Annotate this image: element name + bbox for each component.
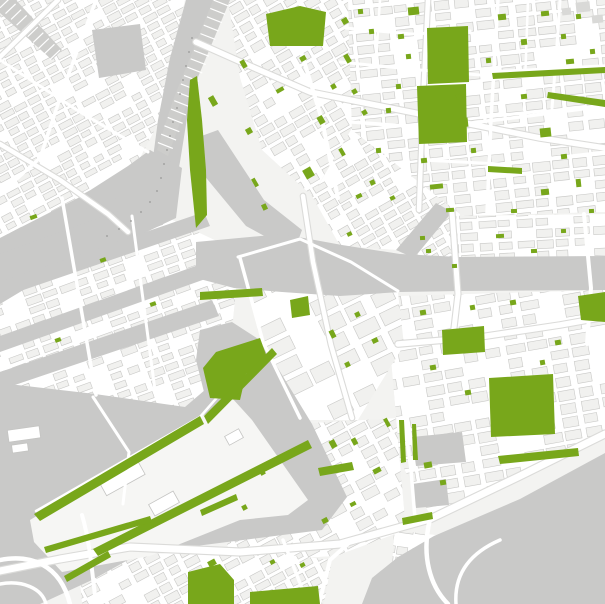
building-block bbox=[496, 202, 513, 213]
small-park bbox=[471, 148, 476, 153]
building-block bbox=[525, 88, 544, 99]
building-block bbox=[536, 218, 548, 225]
small-park bbox=[430, 365, 437, 371]
building-block bbox=[461, 233, 478, 241]
building-block bbox=[499, 242, 512, 250]
building-block bbox=[601, 44, 605, 54]
small-park bbox=[561, 154, 567, 160]
small-park bbox=[498, 14, 507, 21]
building-block bbox=[475, 8, 491, 18]
building-block bbox=[576, 193, 594, 202]
building-block bbox=[594, 248, 605, 256]
ferry-dot bbox=[188, 51, 190, 53]
building-block bbox=[501, 54, 520, 65]
building-block bbox=[449, 146, 466, 157]
building-block bbox=[479, 221, 496, 229]
building-block bbox=[461, 462, 475, 474]
building-block bbox=[515, 188, 530, 197]
building-block bbox=[471, 155, 489, 166]
building-block bbox=[518, 241, 535, 248]
small-park bbox=[358, 9, 363, 14]
building-block bbox=[511, 152, 523, 161]
building-block bbox=[498, 30, 514, 39]
building-block bbox=[585, 82, 602, 93]
building-block bbox=[466, 107, 480, 117]
gray-building bbox=[576, 1, 591, 12]
building-block bbox=[495, 190, 510, 200]
small-park bbox=[456, 94, 462, 100]
small-park bbox=[426, 249, 431, 253]
building-block bbox=[401, 77, 415, 87]
small-park bbox=[541, 189, 550, 196]
ferry-dot bbox=[179, 93, 181, 95]
small-park bbox=[398, 34, 404, 40]
small-park bbox=[521, 39, 528, 46]
building-block bbox=[565, 84, 583, 95]
ferry-dot bbox=[182, 79, 184, 81]
small-park bbox=[420, 236, 425, 240]
building-block bbox=[574, 169, 590, 178]
building-block bbox=[429, 148, 443, 158]
small-park bbox=[440, 480, 447, 486]
small-park bbox=[376, 148, 381, 153]
city-map-svg bbox=[0, 0, 605, 604]
building-block bbox=[516, 4, 532, 13]
building-block bbox=[461, 244, 473, 252]
ferry-dot bbox=[185, 65, 187, 67]
building-block bbox=[491, 154, 505, 163]
building-block bbox=[503, 78, 522, 88]
small-park bbox=[510, 300, 517, 306]
building-block bbox=[558, 24, 575, 35]
building-block bbox=[521, 53, 534, 62]
building-block bbox=[477, 20, 495, 30]
ferry-dot bbox=[176, 107, 178, 109]
building-block bbox=[510, 140, 523, 149]
water-dock-basin bbox=[92, 24, 146, 78]
ferry-dot bbox=[118, 228, 120, 230]
small-park bbox=[496, 234, 504, 238]
building-block bbox=[388, 140, 405, 149]
building-block bbox=[537, 240, 554, 249]
outline-structure bbox=[12, 443, 29, 453]
small-park bbox=[511, 209, 517, 213]
ferry-dot bbox=[163, 163, 165, 165]
small-park bbox=[561, 34, 566, 39]
building-block bbox=[464, 95, 480, 106]
small-park bbox=[420, 310, 427, 316]
small-park bbox=[406, 54, 411, 59]
small-park bbox=[541, 11, 549, 17]
small-park bbox=[486, 58, 491, 63]
building-block bbox=[472, 168, 486, 177]
building-block bbox=[378, 43, 390, 52]
building-block bbox=[593, 226, 605, 235]
building-block bbox=[468, 132, 482, 141]
small-park bbox=[470, 305, 476, 311]
ferry-dot bbox=[166, 149, 168, 151]
building-block bbox=[498, 220, 509, 227]
building-block bbox=[557, 250, 569, 257]
small-park bbox=[421, 158, 427, 164]
small-park bbox=[452, 264, 457, 268]
ferry-dot bbox=[191, 37, 193, 39]
small-park bbox=[540, 127, 552, 137]
building-block bbox=[454, 194, 470, 204]
gray-building bbox=[562, 8, 572, 16]
building-block bbox=[600, 32, 605, 41]
building-block bbox=[379, 55, 394, 65]
building-block bbox=[569, 121, 584, 131]
building-block bbox=[374, 6, 393, 15]
building-block bbox=[596, 0, 605, 6]
building-block bbox=[592, 155, 605, 165]
ferry-dot bbox=[130, 220, 132, 222]
building-block bbox=[434, 0, 449, 10]
building-block bbox=[460, 222, 472, 230]
building-block bbox=[435, 12, 451, 21]
building-block bbox=[594, 167, 605, 176]
building-block bbox=[552, 159, 569, 169]
small-park bbox=[576, 14, 581, 19]
building-block bbox=[499, 304, 513, 314]
building-block bbox=[534, 173, 551, 184]
ferry-dot bbox=[172, 121, 174, 123]
small-park bbox=[576, 179, 582, 187]
building-block bbox=[532, 161, 551, 172]
park-top-center bbox=[266, 6, 326, 46]
ferry-dot bbox=[156, 190, 158, 192]
building-block bbox=[499, 42, 515, 51]
building-block bbox=[452, 170, 465, 179]
building-block bbox=[366, 130, 384, 141]
building-block bbox=[440, 465, 456, 477]
building-block bbox=[478, 308, 492, 319]
building-block bbox=[536, 2, 552, 12]
building-block bbox=[579, 386, 594, 398]
water-gray-yard-1 bbox=[412, 432, 466, 466]
park-big-se bbox=[489, 374, 555, 437]
small-park bbox=[459, 118, 469, 128]
building-block bbox=[554, 171, 570, 181]
ferry-dot bbox=[140, 211, 142, 213]
building-block bbox=[595, 180, 605, 189]
small-park bbox=[396, 84, 401, 89]
ferry-dot bbox=[149, 201, 151, 203]
building-block bbox=[480, 243, 492, 251]
building-block bbox=[596, 191, 605, 201]
small-park bbox=[369, 29, 374, 34]
small-park bbox=[589, 209, 594, 213]
ferry-dot bbox=[169, 135, 171, 137]
small-park bbox=[531, 249, 537, 253]
building-block bbox=[536, 198, 549, 207]
building-block bbox=[522, 314, 536, 326]
building-block bbox=[517, 219, 533, 228]
building-block bbox=[574, 359, 590, 371]
small-park bbox=[521, 94, 527, 100]
ferry-dot bbox=[106, 235, 108, 237]
building-block bbox=[584, 412, 598, 423]
small-park bbox=[386, 108, 391, 113]
building-block bbox=[556, 239, 568, 246]
park-tr-north bbox=[427, 26, 469, 84]
building-block bbox=[574, 216, 590, 223]
small-park bbox=[446, 208, 454, 212]
small-park bbox=[561, 229, 566, 233]
building-block bbox=[479, 45, 492, 53]
building-block bbox=[589, 119, 605, 130]
building-block bbox=[508, 357, 523, 369]
building-block bbox=[360, 69, 378, 78]
small-park bbox=[465, 390, 472, 396]
building-block bbox=[513, 176, 526, 184]
building-block bbox=[432, 172, 449, 182]
park-right-edge bbox=[578, 292, 605, 322]
building-block bbox=[493, 178, 506, 188]
small-park bbox=[590, 49, 595, 54]
building-block bbox=[394, 5, 407, 13]
building-block bbox=[454, 0, 469, 8]
building-block bbox=[572, 157, 587, 167]
building-block bbox=[387, 128, 403, 138]
gray-building bbox=[592, 14, 604, 23]
park-mid-right bbox=[442, 326, 485, 355]
building-block bbox=[538, 26, 556, 35]
building-block bbox=[555, 376, 571, 388]
building-block bbox=[381, 79, 398, 88]
building-block bbox=[431, 412, 445, 423]
small-park bbox=[408, 6, 420, 15]
building-block bbox=[526, 101, 543, 111]
small-park bbox=[555, 340, 562, 346]
building-block bbox=[389, 152, 402, 161]
building-block bbox=[597, 8, 605, 16]
building-block bbox=[536, 229, 552, 238]
map-canvas[interactable] bbox=[0, 0, 605, 604]
building-block bbox=[453, 182, 467, 192]
building-block bbox=[357, 45, 374, 55]
small-park bbox=[540, 360, 546, 366]
building-block bbox=[395, 17, 409, 27]
building-block bbox=[556, 196, 573, 207]
park-tr-south bbox=[417, 84, 467, 144]
ferry-dot bbox=[160, 177, 162, 179]
building-block bbox=[383, 92, 395, 100]
building-block bbox=[474, 0, 487, 5]
building-block bbox=[516, 200, 534, 209]
small-park bbox=[566, 59, 574, 65]
building-block bbox=[506, 103, 524, 113]
